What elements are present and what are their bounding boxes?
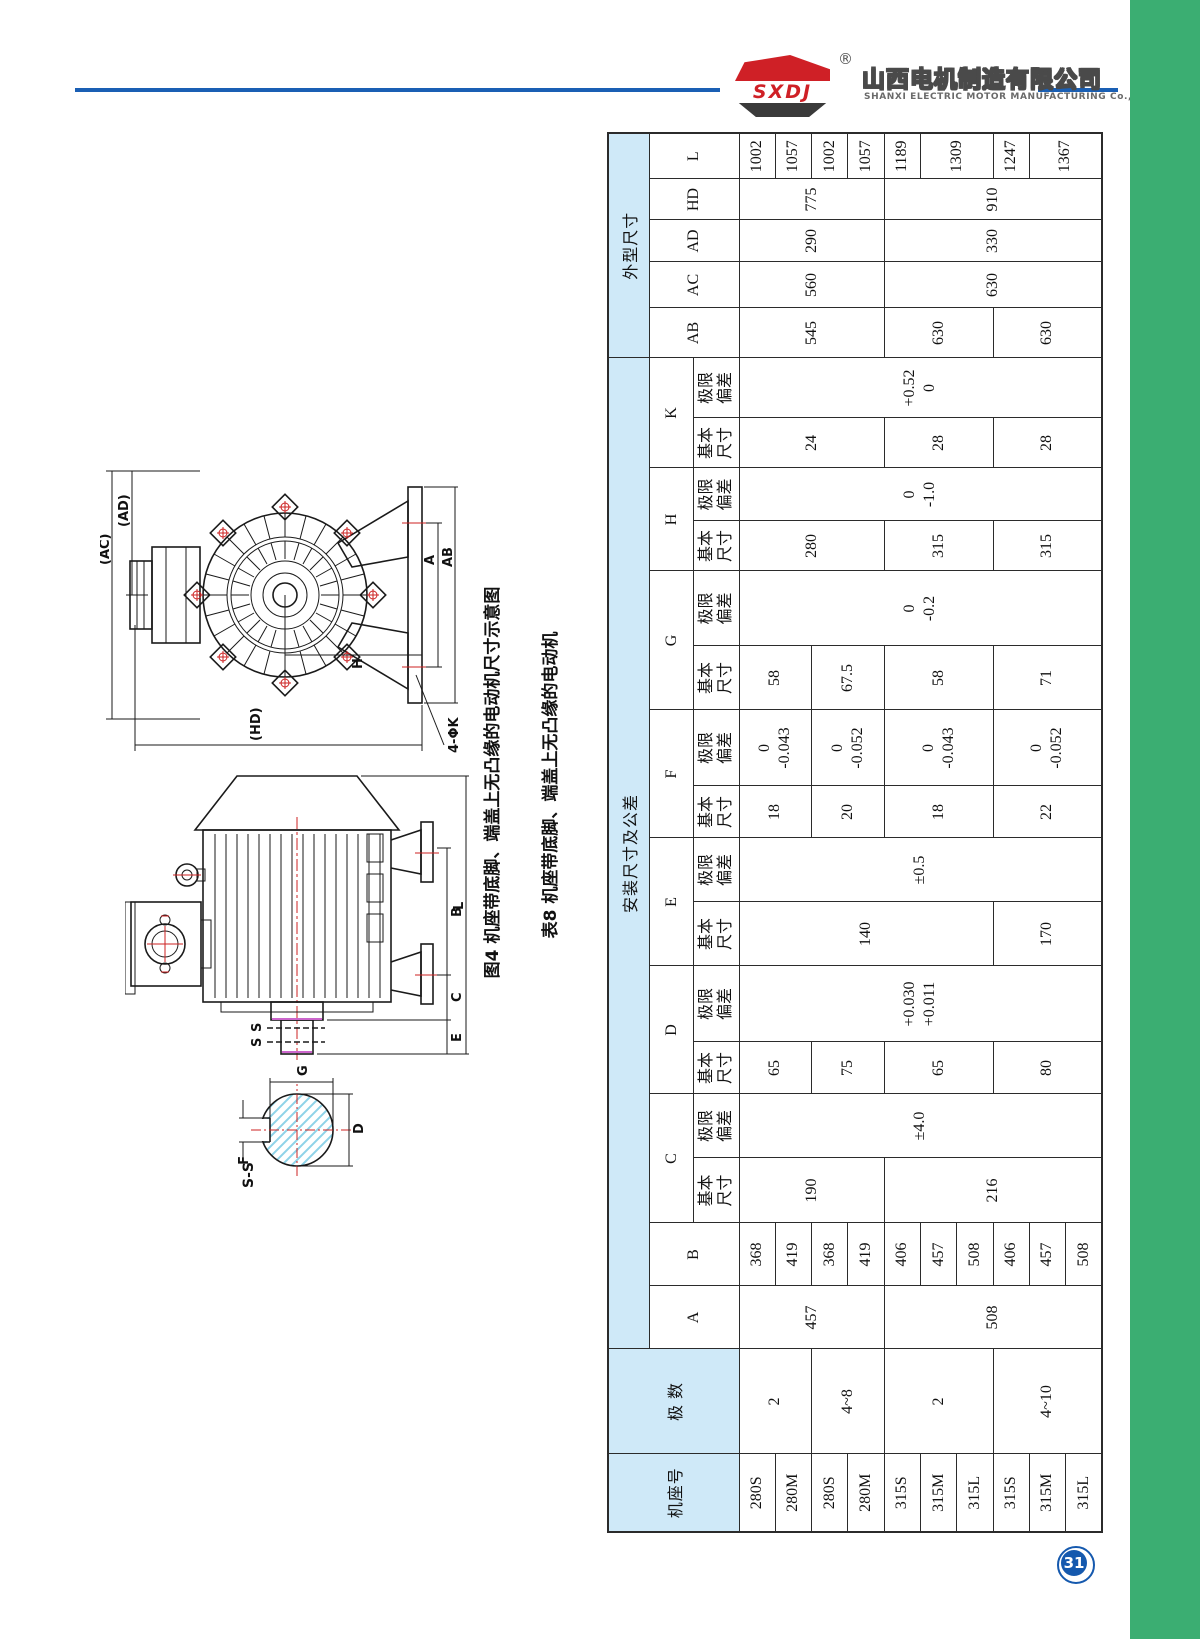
subheader-limit: 极限 偏差: [694, 358, 739, 418]
dim-label-ab: AB: [441, 547, 456, 567]
header-poles: 极 数: [608, 1349, 739, 1454]
table-cell: 140: [739, 902, 993, 966]
dimension-table: 机座号 极 数 安装尺寸及公差 外型尺寸 A B C D E F G H K A…: [607, 132, 1103, 1533]
header-dim-ab: AB: [649, 308, 739, 358]
table-cell: 280S: [739, 1454, 775, 1532]
subheader-basic: 基本 尺寸: [694, 1158, 739, 1223]
table-cell: 18: [884, 786, 993, 838]
header-frame: 机座号: [608, 1454, 739, 1532]
subheader-basic: 基本 尺寸: [694, 418, 739, 468]
logo-roof-shape: [735, 55, 830, 81]
header-dim-ad: AD: [649, 220, 739, 262]
header-dim-hd: HD: [649, 179, 739, 220]
table-cell: 315L: [1066, 1454, 1102, 1532]
subheader-limit: 极限 偏差: [694, 468, 739, 521]
table-cell: 315: [884, 521, 993, 571]
table-cell: 0 -1.0: [739, 468, 1102, 521]
table-cell: 457: [920, 1223, 956, 1286]
dim-label-ac: (AC): [100, 534, 113, 565]
dim-label-l: L: [452, 902, 467, 910]
table-cell: 0 -0.2: [739, 571, 1102, 646]
header-dim-d: D: [649, 966, 693, 1094]
table-cell: 508: [957, 1223, 993, 1286]
table-cell: 58: [739, 646, 812, 710]
subheader-limit: 极限 偏差: [694, 838, 739, 902]
table-cell: 315: [993, 521, 1102, 571]
subheader-basic: 基本 尺寸: [694, 521, 739, 571]
table-cell: 71: [993, 646, 1102, 710]
subheader-limit: 极限 偏差: [694, 966, 739, 1042]
table-cell: 1367: [1029, 133, 1102, 179]
motor-side-view-drawing: S S: [125, 770, 470, 1060]
header-outline: 外型尺寸: [608, 133, 649, 358]
table-cell: 315S: [884, 1454, 920, 1532]
table-cell: 2: [739, 1349, 812, 1454]
logo-wordmark: SXDJ: [735, 81, 830, 103]
subheader-basic: 基本 尺寸: [694, 902, 739, 966]
table-cell: 419: [848, 1223, 884, 1286]
dim-label-ad: (AD): [117, 494, 132, 527]
table-cell: 75: [812, 1042, 885, 1094]
section-hatching: [225, 1080, 365, 1166]
header-dim-f: F: [649, 710, 693, 838]
table-cell: 910: [884, 179, 1102, 220]
table-cell: 406: [993, 1223, 1029, 1286]
header-dim-b: B: [649, 1223, 739, 1286]
table-cell: 0 -0.043: [884, 710, 993, 786]
dim-label-hd: (HD): [249, 707, 264, 741]
header-dim-k: K: [649, 358, 693, 468]
figure-caption: 图4 机座带底脚、端盖上无凸缘的电动机尺寸示意图: [478, 545, 503, 1020]
table-cell: 18: [739, 786, 812, 838]
table-cell: 630: [993, 308, 1102, 358]
section-title: S-S: [241, 1162, 257, 1188]
table-cell: 28: [993, 418, 1102, 468]
dim-label-h: H: [351, 658, 366, 669]
sxdj-logo: SXDJ: [735, 55, 830, 117]
table-cell: 368: [739, 1223, 775, 1286]
dim-label-c: C: [450, 992, 465, 1002]
table-cell: 315M: [920, 1454, 956, 1532]
subheader-basic: 基本 尺寸: [694, 1042, 739, 1094]
table-cell: 170: [993, 902, 1102, 966]
table-cell: ±0.5: [739, 838, 1102, 902]
table-cell: 1002: [812, 133, 848, 179]
table-cell: 1057: [775, 133, 811, 179]
table-cell: 58: [884, 646, 993, 710]
header-dim-a: A: [649, 1286, 739, 1349]
header-dim-e: E: [649, 838, 693, 966]
table-cell: 65: [884, 1042, 993, 1094]
dimension-table-block: 机座号 极 数 安装尺寸及公差 外型尺寸 A B C D E F G H K A…: [607, 134, 1103, 1533]
table-cell: 630: [884, 308, 993, 358]
table-cell: 216: [884, 1158, 1102, 1223]
table-cell: 190: [739, 1158, 884, 1223]
table-cell: 24: [739, 418, 884, 468]
table-cell: 0 -0.052: [993, 710, 1102, 786]
table-cell: 508: [1066, 1223, 1102, 1286]
table-cell: 330: [884, 220, 1102, 262]
shaft-section-drawing: F G D S-S: [225, 1060, 365, 1190]
table-cell: +0.52 0: [739, 358, 1102, 418]
table-cell: +0.030 +0.011: [739, 966, 1102, 1042]
table-cell: 67.5: [812, 646, 885, 710]
table-cell: 315S: [993, 1454, 1029, 1532]
table-cell: 1247: [993, 133, 1029, 179]
table-cell: 4~10: [993, 1349, 1102, 1454]
table-cell: 508: [884, 1286, 1102, 1349]
table-cell: 545: [739, 308, 884, 358]
cut-label-s2: S: [250, 1023, 265, 1032]
table-caption: 表8 机座带底脚、端盖上无凸缘的电动机: [536, 575, 561, 995]
table-cell: 80: [993, 1042, 1102, 1094]
table-cell: 280M: [775, 1454, 811, 1532]
cut-label-s1: S: [250, 1038, 265, 1047]
table-cell: 280S: [812, 1454, 848, 1532]
subheader-basic: 基本 尺寸: [694, 646, 739, 710]
logo-base-shape: [735, 103, 830, 117]
table-cell: 775: [739, 179, 884, 220]
table-cell: 630: [884, 262, 1102, 308]
header-install: 安装尺寸及公差: [608, 358, 649, 1349]
page-number: 31: [1061, 1550, 1087, 1576]
header-dim-ac: AC: [649, 262, 739, 308]
table-cell: 368: [812, 1223, 848, 1286]
dim-label-4phik: 4-ΦK: [447, 717, 462, 753]
table-cell: 20: [812, 786, 885, 838]
table-cell: 1189: [884, 133, 920, 179]
table-cell: 28: [884, 418, 993, 468]
table-cell: 280: [739, 521, 884, 571]
subheader-limit: 极限 偏差: [694, 710, 739, 786]
table-cell: 1002: [739, 133, 775, 179]
dim-label-g: G: [296, 1065, 311, 1076]
header-dim-c: C: [649, 1094, 693, 1223]
table-cell: 0 -0.043: [739, 710, 812, 786]
subheader-limit: 极限 偏差: [694, 1094, 739, 1158]
dim-label-a: A: [423, 555, 438, 565]
table-cell: 315L: [957, 1454, 993, 1532]
table-cell: 560: [739, 262, 884, 308]
table-cell: 290: [739, 220, 884, 262]
table-cell: 419: [775, 1223, 811, 1286]
table-cell: 4~8: [812, 1349, 885, 1454]
table-cell: 315M: [1029, 1454, 1065, 1532]
subheader-limit: 极限 偏差: [694, 571, 739, 646]
table-cell: 1057: [848, 133, 884, 179]
registered-mark: ®: [838, 50, 853, 68]
table-cell: 280M: [848, 1454, 884, 1532]
dim-label-e: E: [450, 1033, 465, 1042]
header-dim-h: H: [649, 468, 693, 571]
table-cell: 0 -0.052: [812, 710, 885, 786]
table-cell: 406: [884, 1223, 920, 1286]
page-number-badge: 31: [1057, 1546, 1095, 1584]
table-cell: 457: [1029, 1223, 1065, 1286]
motor-end-view-drawing: (AC) (AD) (HD) H A AB 4-ΦK: [100, 420, 465, 755]
header-rule-left: [75, 88, 720, 92]
table-cell: 457: [739, 1286, 884, 1349]
table-cell: 65: [739, 1042, 812, 1094]
catalog-page: SXDJ ® 山西电机制造有限公司 SHANXI ELECTRIC MOTOR …: [0, 0, 1200, 1639]
figures-block: F G D S-S S S: [30, 420, 570, 1190]
dim-label-d: D: [352, 1123, 365, 1134]
table-cell: 22: [993, 786, 1102, 838]
table-cell: 2: [884, 1349, 993, 1454]
company-name-en: SHANXI ELECTRIC MOTOR MANUFACTURING Co.,…: [864, 92, 1154, 102]
header-dim-l: L: [649, 133, 739, 179]
table-cell: 1309: [920, 133, 993, 179]
company-name-cn: 山西电机制造有限公司: [862, 60, 1102, 94]
header-dim-g: G: [649, 571, 693, 710]
table-cell: ±4.0: [739, 1094, 1102, 1158]
subheader-basic: 基本 尺寸: [694, 786, 739, 838]
page-edge-bar: [1130, 0, 1200, 1639]
